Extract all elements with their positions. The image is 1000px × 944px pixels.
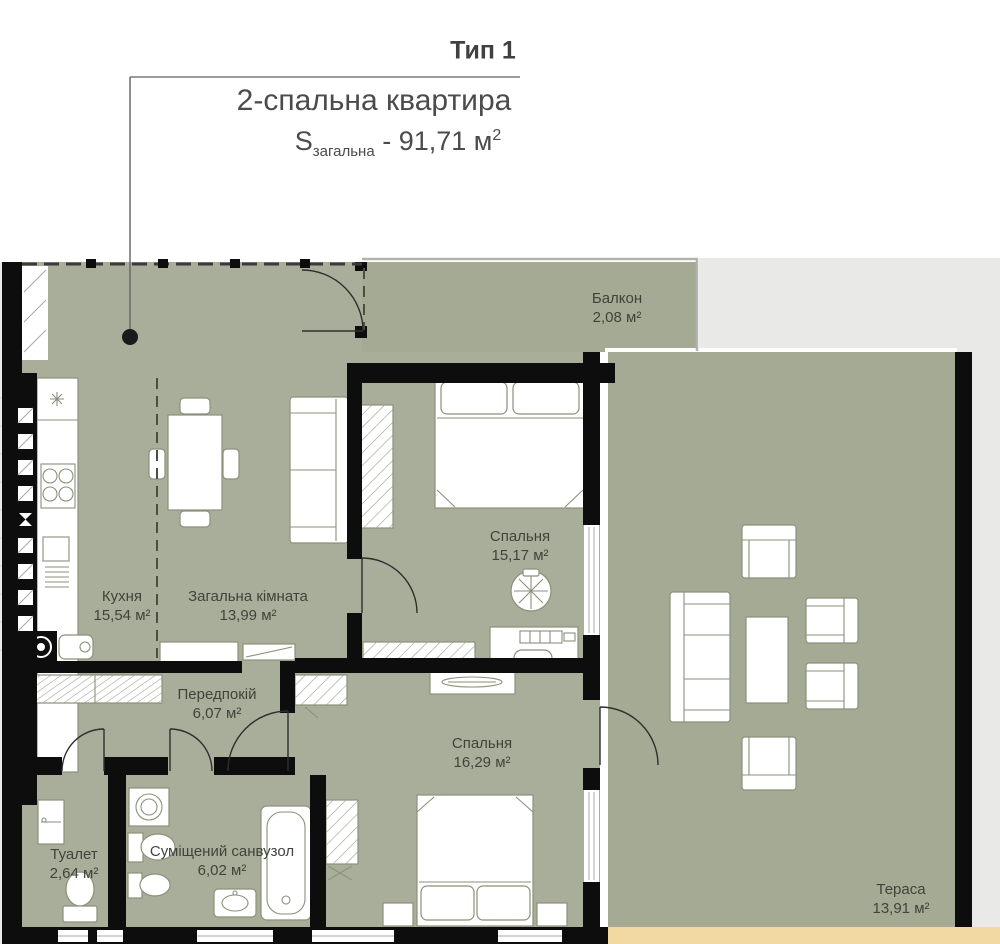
balcony-floor — [362, 262, 697, 352]
area-value: - 91,71 м — [375, 126, 493, 156]
corner-window — [22, 266, 48, 360]
floor-plan: Тип 1 2-спальна квартира Sзагальна - 91,… — [0, 0, 1000, 944]
nightstand — [383, 903, 413, 926]
room-label-balcony: Балкон2,08 м² — [592, 289, 642, 327]
area-symbol: S — [295, 126, 313, 156]
apartment-subtitle: 2-спальна квартира — [237, 84, 512, 118]
toilet-icon — [63, 906, 97, 922]
area-subscript: загальна — [313, 143, 375, 160]
hallway-closet — [28, 675, 162, 703]
leader-dot — [122, 329, 138, 345]
room-label-bedroom1: Спальня15,17 м² — [490, 527, 550, 565]
terrace-edge-strip — [608, 927, 1000, 944]
bedroom1-window — [584, 525, 599, 635]
room-label-bathroom: Суміщений санвузол6,02 м² — [150, 842, 294, 880]
terrace-armchair — [806, 663, 858, 709]
bedroom2-dresser — [430, 671, 515, 694]
living-sofa — [290, 397, 348, 543]
bedroom2-window — [584, 790, 599, 882]
bedroom1-bed — [435, 377, 585, 508]
room-label-bedroom2: Спальня16,29 м² — [452, 734, 512, 772]
room-label-living: Загальна кімната13,99 м² — [188, 587, 308, 625]
terrace-floor — [605, 348, 1000, 944]
area-sup: 2 — [492, 127, 501, 144]
room-label-toilet: Туалет2,64 м² — [50, 845, 99, 883]
room-label-terrace: Тераса13,91 м² — [872, 880, 929, 918]
nightstand — [537, 903, 567, 926]
room-label-hallway: Передпокій6,07 м² — [178, 685, 257, 723]
terrace-chair — [742, 737, 796, 790]
terrace-armchair — [806, 598, 858, 643]
vent-shafts — [18, 408, 33, 631]
plan-type-title: Тип 1 — [450, 37, 516, 66]
terrace-sofa — [670, 592, 730, 722]
lamp-icon — [50, 392, 64, 406]
kitchen-counter — [37, 378, 78, 772]
terrace-chair — [742, 525, 796, 578]
terrace-table — [746, 617, 788, 703]
sink-icon — [214, 889, 256, 917]
room-label-kitchen: Кухня15,54 м² — [93, 587, 150, 625]
total-area: Sзагальна - 91,71 м2 — [295, 126, 501, 160]
bedroom1-wardrobe — [358, 405, 393, 528]
